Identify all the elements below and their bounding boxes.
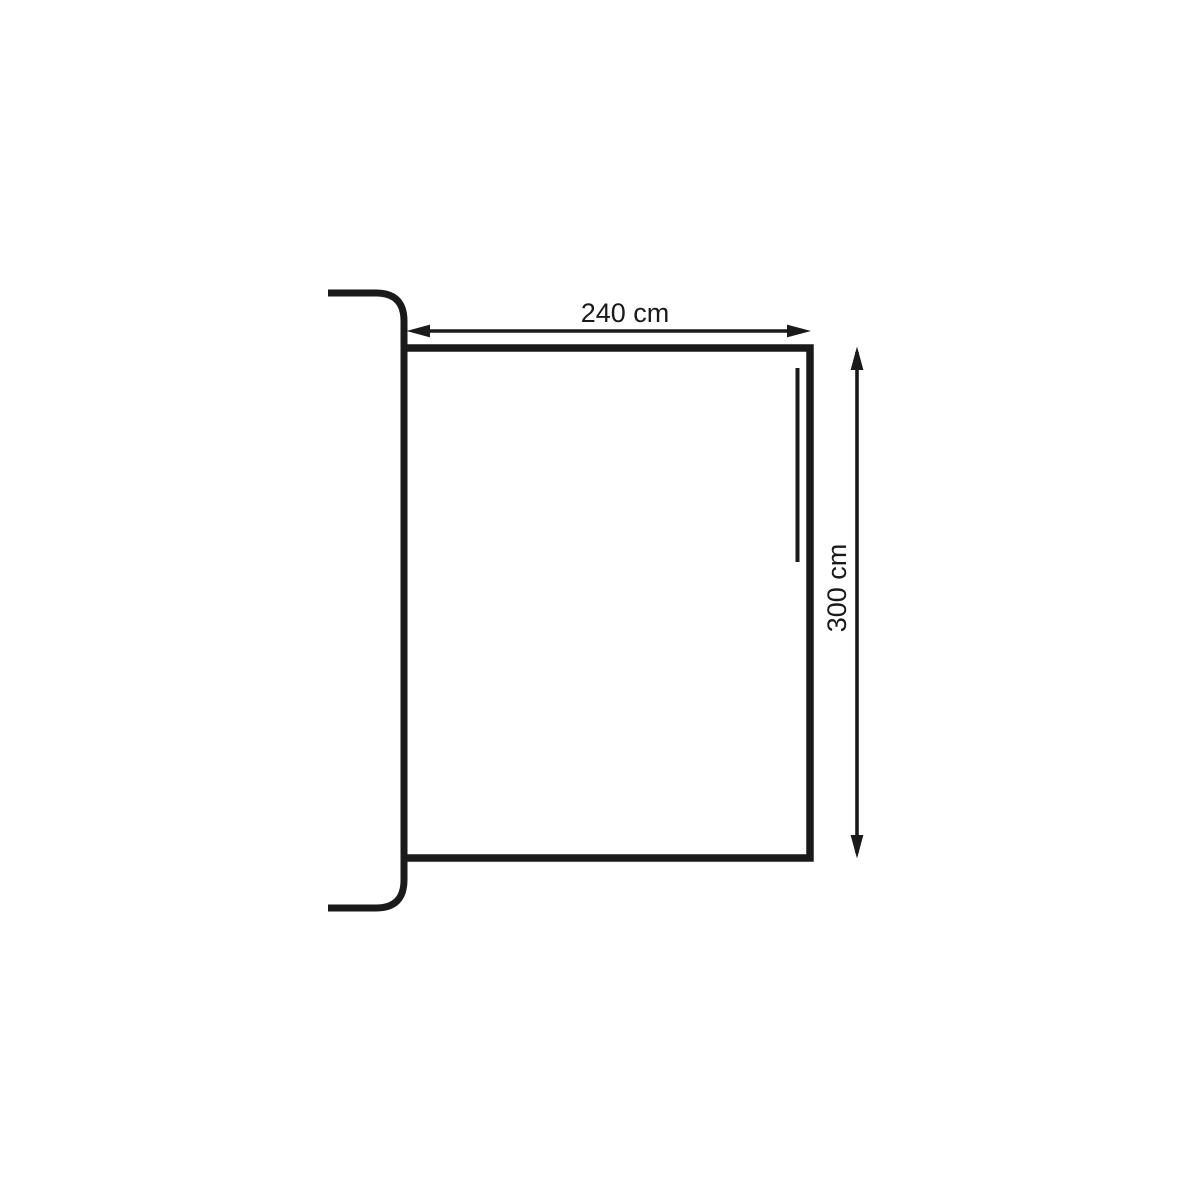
height-dimension-label: 300 cm [822, 544, 852, 633]
arrowhead-up-icon [851, 347, 864, 371]
diagram-svg: 240 cm 300 cm [0, 0, 1200, 1200]
width-dimension-label: 240 cm [581, 298, 670, 328]
width-dimension: 240 cm [407, 298, 812, 337]
arrowhead-left-icon [407, 325, 431, 338]
awning-rail-profile [328, 293, 404, 908]
height-dimension: 300 cm [822, 347, 863, 859]
arrowhead-down-icon [851, 835, 864, 859]
fabric-panel-outline [401, 348, 810, 858]
arrowhead-right-icon [787, 325, 811, 338]
dimension-diagram: 240 cm 300 cm [0, 0, 1200, 1200]
